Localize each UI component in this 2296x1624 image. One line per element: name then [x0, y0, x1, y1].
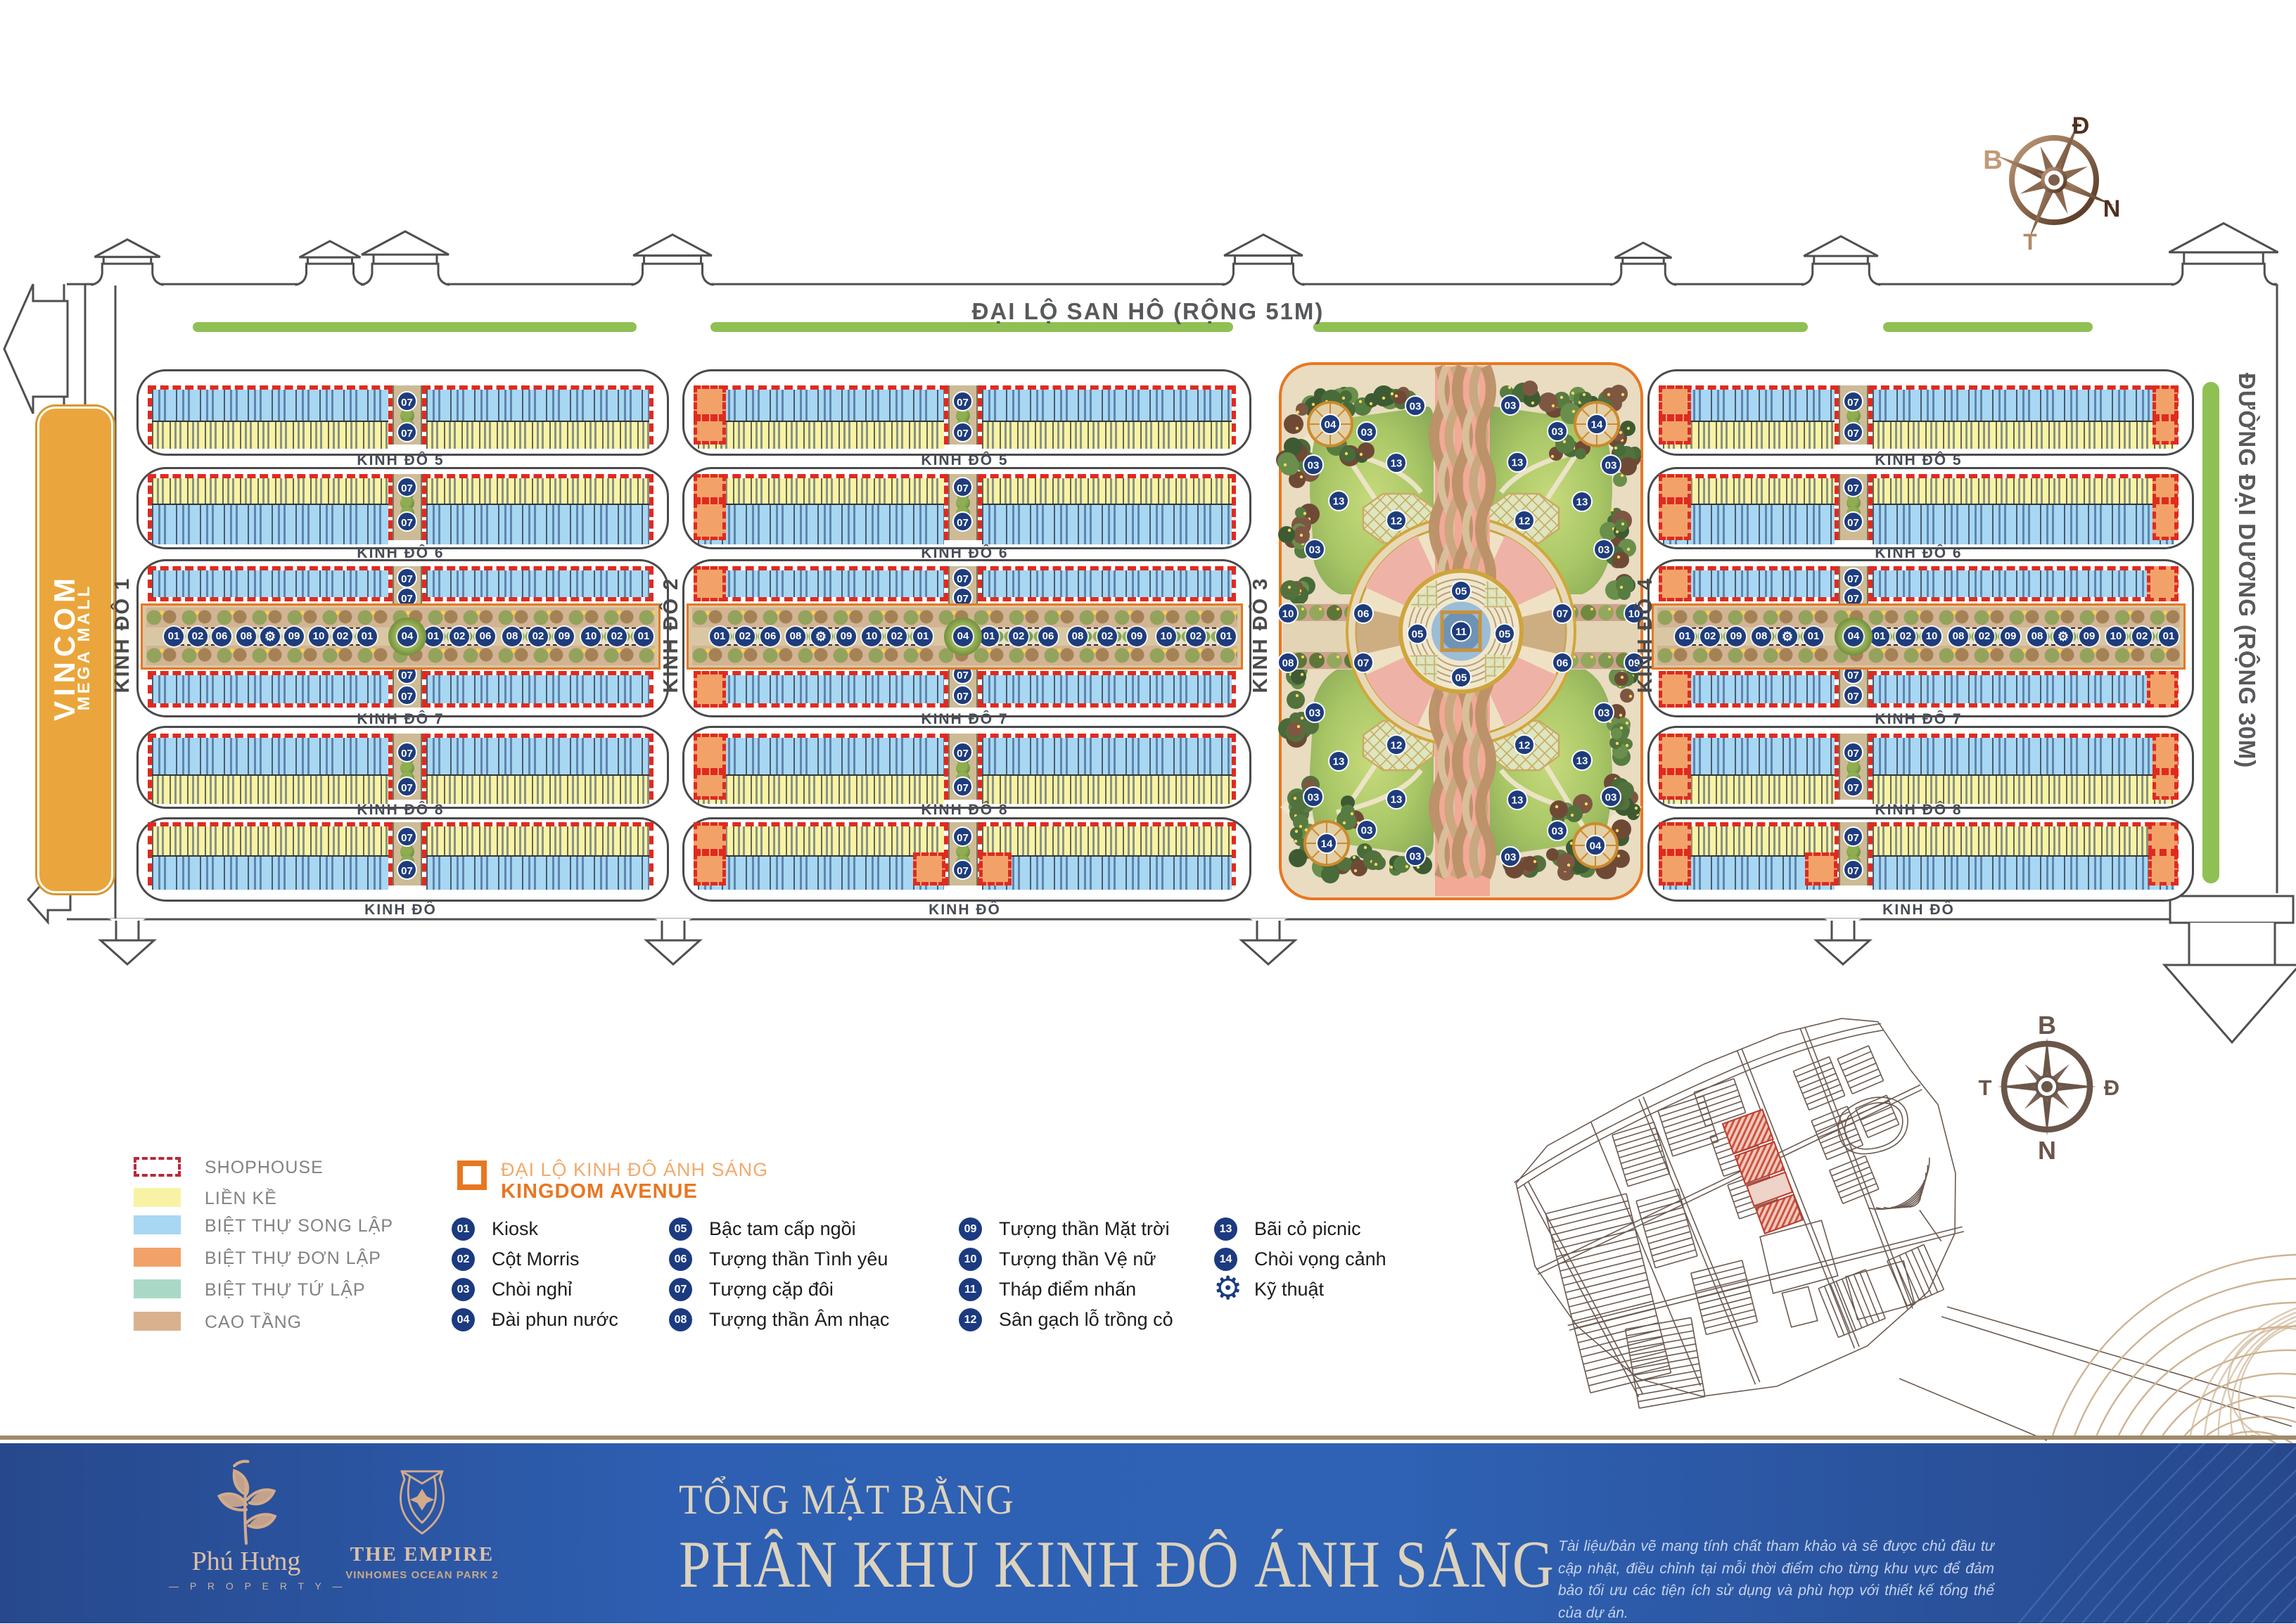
svg-text:05: 05 — [1455, 585, 1467, 597]
svg-text:03: 03 — [1308, 459, 1320, 471]
svg-text:03: 03 — [1308, 791, 1320, 803]
svg-text:04: 04 — [1590, 840, 1602, 852]
svg-text:13: 13 — [1512, 456, 1524, 468]
svg-text:03: 03 — [1505, 399, 1517, 411]
svg-text:03: 03 — [1309, 707, 1321, 719]
svg-text:13: 13 — [1333, 755, 1345, 767]
svg-text:T: T — [2023, 229, 2037, 255]
svg-text:03: 03 — [1361, 426, 1373, 438]
svg-text:13: 13 — [1333, 495, 1345, 507]
svg-text:13: 13 — [1576, 755, 1588, 767]
svg-text:N: N — [2103, 196, 2121, 222]
svg-text:06: 06 — [1557, 657, 1569, 669]
svg-text:04: 04 — [1325, 418, 1337, 430]
svg-text:12: 12 — [1391, 515, 1403, 527]
svg-text:Đ: Đ — [2104, 1075, 2119, 1100]
svg-text:14: 14 — [1591, 418, 1603, 430]
svg-text:12: 12 — [1519, 739, 1531, 751]
svg-text:N: N — [2038, 1136, 2056, 1165]
svg-text:03: 03 — [1410, 400, 1422, 412]
svg-text:13: 13 — [1391, 793, 1403, 805]
svg-text:Đ: Đ — [2072, 113, 2090, 139]
svg-text:T: T — [1979, 1075, 1992, 1100]
svg-text:03: 03 — [1552, 825, 1564, 837]
svg-text:03: 03 — [1605, 459, 1617, 471]
svg-text:13: 13 — [1512, 794, 1524, 806]
svg-text:03: 03 — [1598, 707, 1610, 719]
svg-text:12: 12 — [1391, 739, 1403, 751]
svg-text:03: 03 — [1410, 850, 1422, 862]
svg-text:14: 14 — [1321, 838, 1333, 850]
svg-text:11: 11 — [1455, 626, 1467, 638]
svg-text:03: 03 — [1505, 851, 1517, 863]
svg-text:03: 03 — [1605, 791, 1617, 803]
svg-text:05: 05 — [1455, 672, 1467, 684]
svg-text:12: 12 — [1519, 515, 1531, 527]
svg-text:13: 13 — [1576, 496, 1588, 508]
svg-text:07: 07 — [1358, 657, 1370, 669]
svg-text:10: 10 — [1282, 608, 1294, 620]
svg-text:06: 06 — [1358, 608, 1370, 620]
svg-text:08: 08 — [1282, 657, 1294, 669]
svg-text:B: B — [1983, 146, 2002, 175]
svg-text:05: 05 — [1412, 628, 1424, 640]
svg-text:B: B — [2038, 1011, 2056, 1040]
svg-text:03: 03 — [1361, 824, 1373, 836]
svg-text:13: 13 — [1391, 457, 1403, 469]
svg-text:05: 05 — [1499, 628, 1511, 640]
svg-text:07: 07 — [1557, 608, 1569, 620]
svg-text:03: 03 — [1598, 544, 1610, 556]
svg-text:03: 03 — [1552, 426, 1564, 437]
svg-text:03: 03 — [1309, 544, 1321, 556]
